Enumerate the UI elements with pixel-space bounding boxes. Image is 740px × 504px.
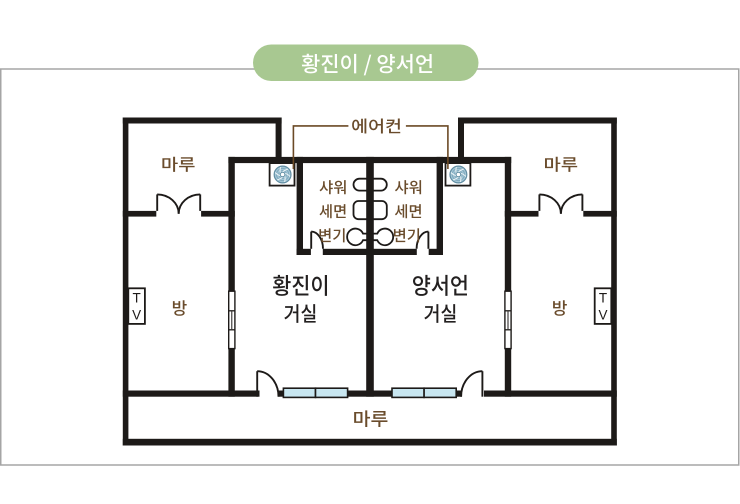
svg-text:T: T bbox=[599, 291, 607, 306]
svg-text:V: V bbox=[598, 308, 607, 323]
svg-text:V: V bbox=[132, 308, 141, 323]
svg-text:T: T bbox=[132, 291, 140, 306]
